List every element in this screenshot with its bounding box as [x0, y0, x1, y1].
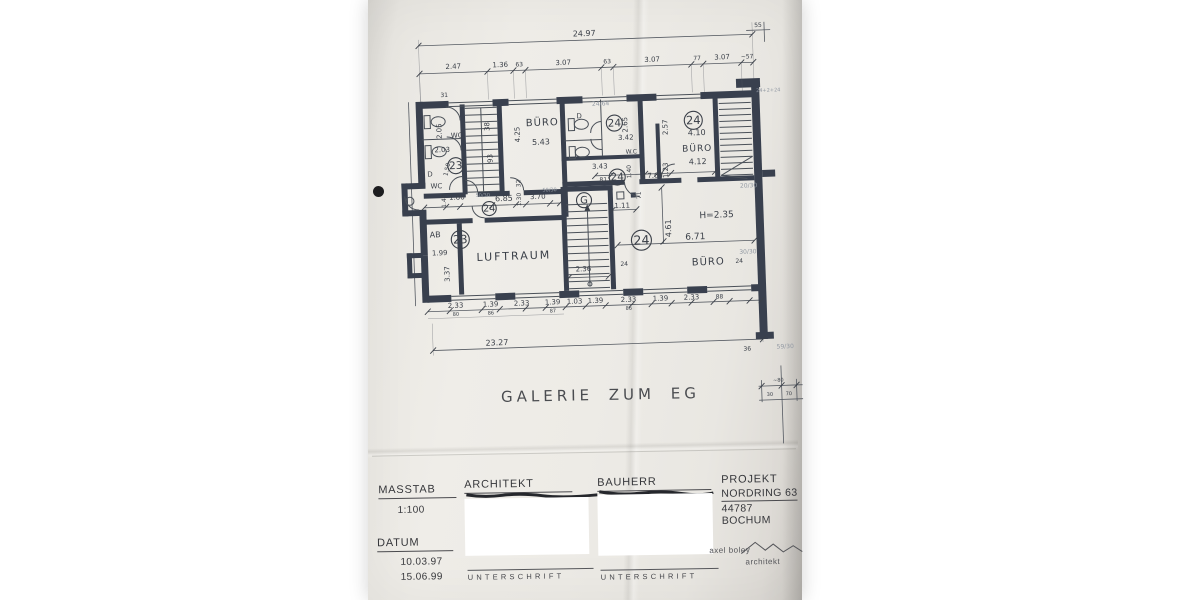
projekt-street: NORDRING 63 — [721, 487, 797, 502]
room-number-label: 24 — [633, 232, 649, 248]
plan-label: 86 — [488, 310, 495, 316]
plan-label: 55 — [754, 22, 762, 29]
plan-label: 1.03 — [567, 297, 583, 306]
plan-label: ~57 — [741, 53, 754, 60]
plan-label: 1.39 — [545, 298, 561, 307]
room-number-label: 23 — [449, 160, 463, 172]
plan-label: 6.85 — [495, 194, 513, 204]
plan-label: 1.23 — [662, 162, 671, 178]
plan-label: 59/30 — [776, 343, 794, 351]
plan-label: 77 — [693, 55, 701, 62]
projekt-label: PROJEKT — [721, 473, 778, 486]
plan-label: 3.43 — [592, 162, 608, 171]
title-block: MASSTAB 1:100 DATUM 10.03.97 15.06.99 AR… — [369, 467, 803, 600]
bauherr-unterschrift-label: UNTERSCHRIFT — [601, 568, 719, 582]
plan-label: 2.33 — [448, 301, 464, 310]
plan-label: AB — [429, 230, 440, 239]
architekt-unterschrift-label: UNTERSCHRIFT — [468, 568, 594, 582]
plan-label: 86 — [626, 306, 633, 312]
plan-label: 1.39 — [483, 300, 499, 309]
plan-label: 2.33 — [684, 293, 700, 302]
plan-label: 5.43 — [532, 137, 550, 147]
plan-label: 63 — [515, 61, 523, 68]
plan-label: 2.47 — [445, 62, 461, 71]
plan-label: 1.99 — [432, 249, 448, 258]
plan-label: 38 — [483, 122, 491, 131]
plan-label: ~80 — [773, 377, 784, 383]
plan-label: 1.36 — [492, 61, 508, 70]
drawing-title: GALERIE ZUM EG — [501, 384, 700, 406]
plan-label: 32 — [515, 179, 522, 187]
masstab-label: MASSTAB — [378, 483, 456, 499]
plan-label: D — [576, 112, 582, 120]
plan-label: 30 — [767, 392, 774, 398]
plan-label: 30/30 — [739, 248, 757, 256]
plan-label: 1.11 — [614, 202, 630, 211]
plan-label: 31 — [440, 92, 448, 99]
plan-label: 88 — [716, 293, 724, 300]
plan-label: WC — [451, 131, 463, 139]
plan-label: 93 — [486, 154, 494, 163]
plan-label: 81 — [599, 176, 607, 183]
logo-name: axel boley — [709, 545, 750, 555]
plan-label: 50/30 — [475, 192, 490, 198]
plan-label: BÜRO — [526, 115, 559, 129]
plan-label: 1.40 — [626, 165, 633, 179]
plan-label: 87 — [550, 308, 557, 314]
plan-label: 1.39 — [653, 294, 669, 303]
plan-label: 2.05 — [435, 123, 444, 139]
plan-label: 1.30 — [516, 192, 523, 206]
room-number-label: 24 — [607, 117, 621, 129]
datum-label: DATUM — [377, 536, 453, 552]
masstab-value: 1:100 — [398, 505, 425, 516]
plan-label: H=2.35 — [699, 210, 734, 221]
room-number-label: 23 — [453, 232, 468, 247]
plan-label: 4.61 — [664, 219, 674, 237]
datum-value-2: 15.06.99 — [401, 571, 443, 583]
plan-label: 4.12 — [689, 157, 707, 167]
plan-label: 36 — [743, 345, 751, 352]
plan-label: 1.39 — [588, 297, 604, 306]
plan-label: 71 — [636, 191, 643, 199]
plan-label: W.C — [626, 148, 638, 155]
plan-label: 23.27 — [485, 338, 508, 348]
generated-geometry — [415, 30, 799, 401]
plan-label: 2.33 — [514, 299, 530, 308]
plan-label: 24.97 — [573, 29, 596, 39]
room-number-label: 24 — [483, 203, 495, 214]
plan-label: 3.70 — [530, 193, 546, 202]
plan-label: 63 — [603, 58, 611, 65]
plan-label: WC — [430, 182, 442, 190]
plan-label: 50/30 — [542, 187, 557, 193]
plan-label: BÜRO — [682, 143, 712, 155]
architect-logo: axel boley architekt — [705, 539, 804, 577]
plan-label: 3.07 — [555, 59, 571, 68]
plan-label: 2.36 — [575, 265, 591, 274]
plan-label: 1.40 — [441, 194, 448, 208]
plan-label: 2.33 — [621, 295, 637, 304]
room-number-label: 24 — [610, 171, 624, 183]
plan-label: 2.03 — [434, 146, 450, 155]
plan-label: 20/30 — [740, 182, 758, 190]
plan-label: 3.07 — [644, 55, 660, 64]
plan-label: BÜRO — [691, 254, 724, 268]
plan-label: 7.64 — [647, 171, 663, 180]
room-number-label: 24 — [686, 113, 701, 128]
plan-label: 2.57 — [661, 119, 670, 135]
datum-value-1: 10.03.97 — [400, 556, 442, 568]
plan-label: 3.07 — [714, 53, 730, 62]
plan-label: 1.86 — [449, 193, 465, 202]
room-number-label: G — [580, 195, 588, 206]
plan-label: 70 — [786, 391, 793, 397]
architekt-redaction-box — [464, 497, 589, 556]
plan-label: LUFTRAUM — [476, 248, 551, 264]
plan-label: 3.37 — [443, 266, 452, 282]
plan-label: 24 — [620, 261, 628, 268]
logo-title: architekt — [745, 557, 780, 567]
plan-label: 6.71 — [685, 232, 705, 243]
plan-label: 24 — [735, 258, 743, 265]
scanned-floorplan-page: 24.97552.471.36633.07633.07773.07~573124… — [0, 0, 1200, 600]
bauherr-redaction-box — [597, 493, 713, 556]
plan-label: 24+2+24 — [756, 87, 780, 94]
plan-label: 4.25 — [513, 127, 522, 143]
plan-label: 80 — [453, 312, 460, 318]
projekt-city: 44787 BOCHUM — [722, 502, 802, 527]
plan-label: D — [427, 170, 433, 178]
plan-label: 3.42 — [618, 133, 634, 142]
plan-label: 24/64 — [592, 100, 610, 108]
